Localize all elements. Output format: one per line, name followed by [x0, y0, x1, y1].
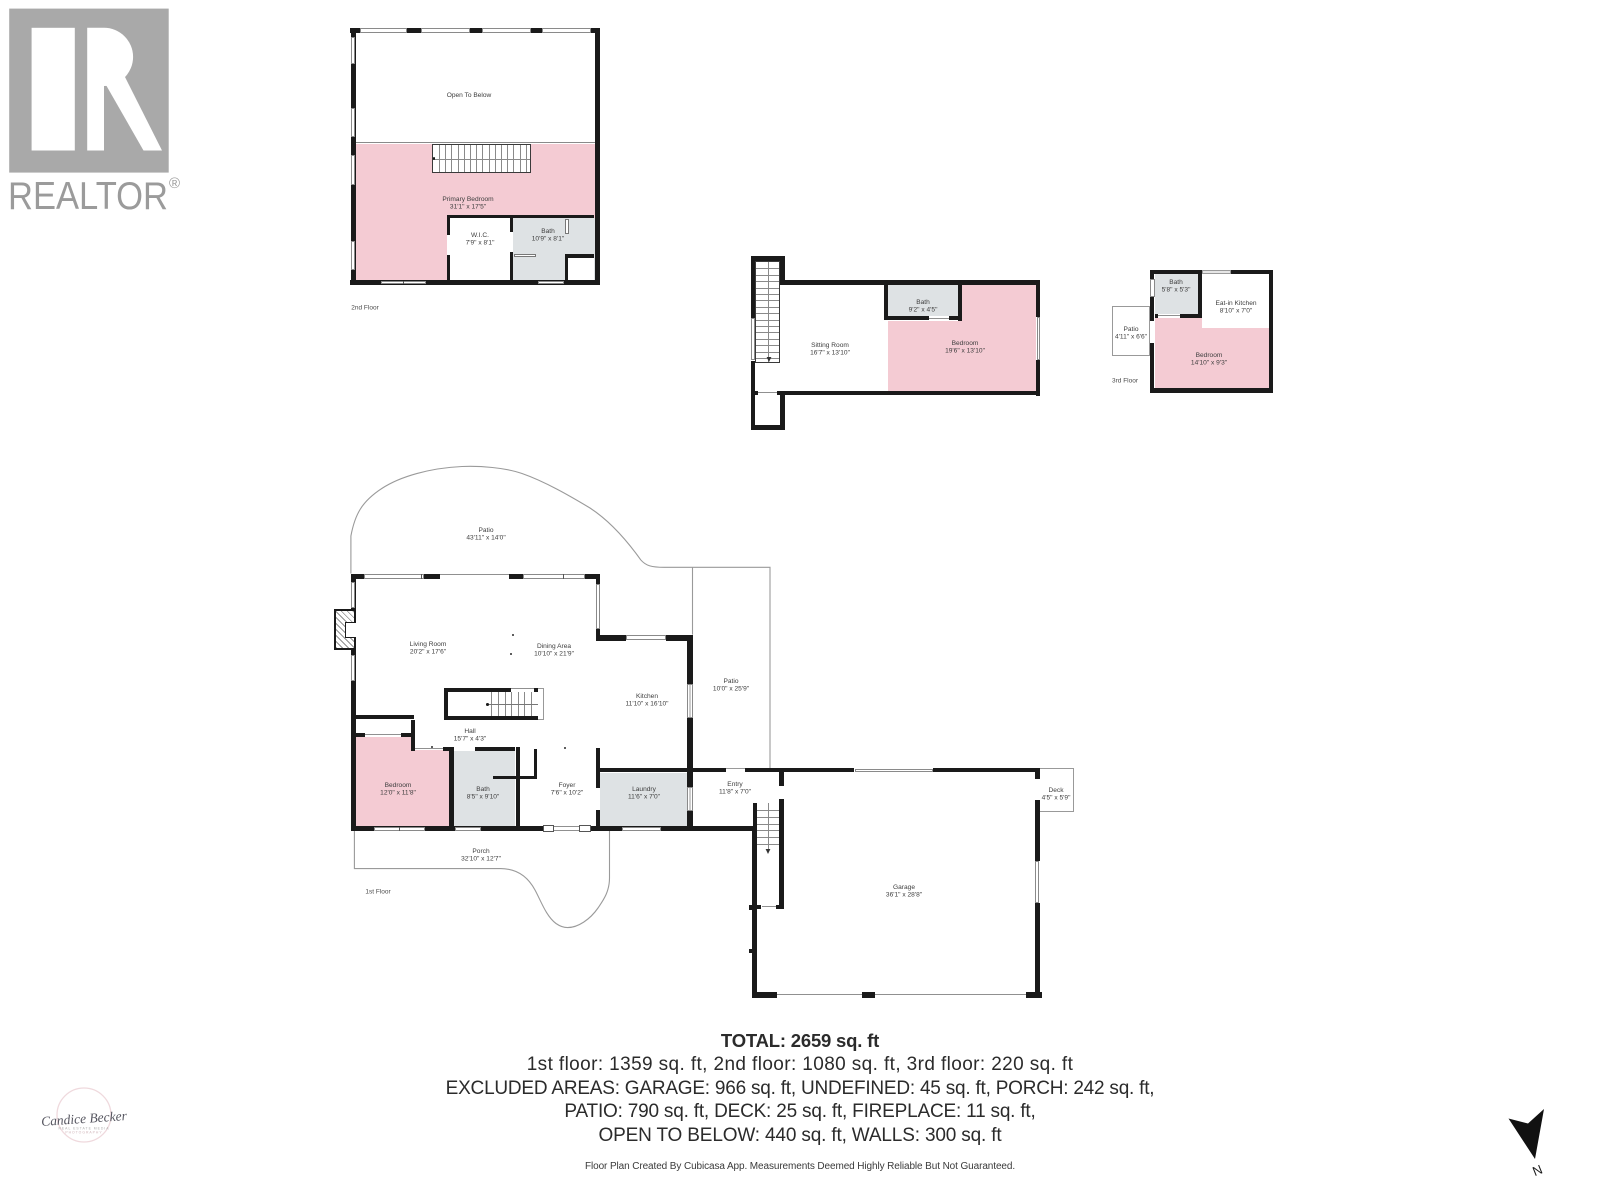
svg-text:PHOTOGRAPHY: PHOTOGRAPHY: [65, 1131, 102, 1135]
svg-text:N: N: [1530, 1162, 1544, 1179]
